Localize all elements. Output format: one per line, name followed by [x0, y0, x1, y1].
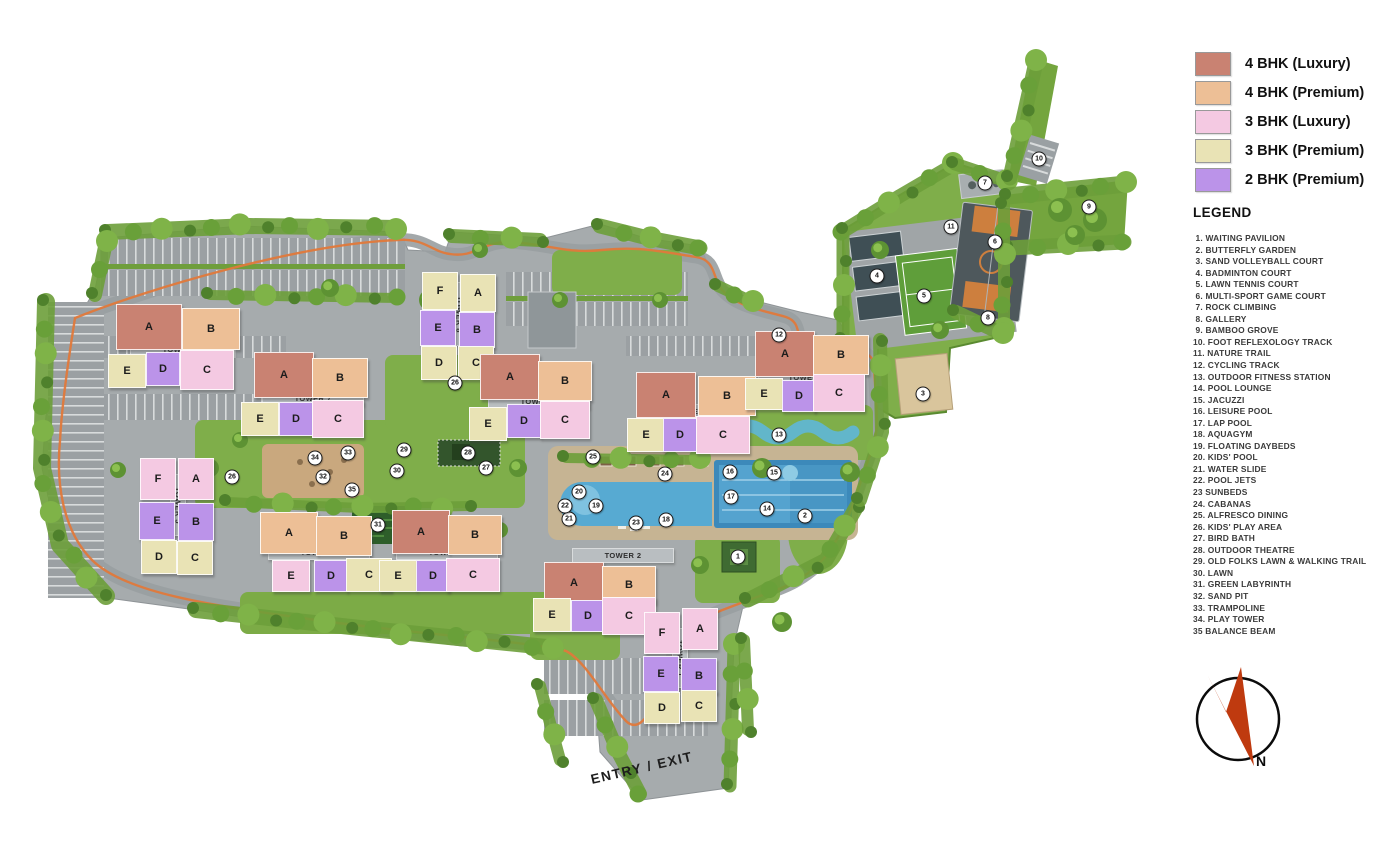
legend-item: 34. PLAY TOWER: [1193, 614, 1400, 626]
legend-list: 1. WAITING PAVILION 2. BUTTERFLY GARDEN …: [1193, 233, 1400, 637]
key-row-4P: 4 BHK (Premium): [1195, 81, 1364, 105]
marker-2[interactable]: 2: [798, 509, 813, 524]
legend-item: 30. LAWN: [1193, 568, 1400, 580]
legend-item: 8. GALLERY: [1193, 314, 1400, 326]
legend-item: 33. TRAMPOLINE: [1193, 603, 1400, 615]
tower-4-unit-A[interactable]: A: [260, 512, 318, 554]
tower-1-unit-E[interactable]: E: [643, 656, 679, 692]
compass: N: [1197, 667, 1279, 769]
tower-6-unit-A[interactable]: A: [116, 304, 182, 350]
legend-item: 29. OLD FOLKS LAWN & WALKING TRAIL: [1193, 556, 1400, 568]
legend-item: 1. WAITING PAVILION: [1193, 233, 1400, 245]
tower-6-unit-C[interactable]: C: [180, 350, 234, 390]
tower-1-unit-A[interactable]: A: [682, 608, 718, 650]
marker-23[interactable]: 23: [629, 516, 644, 531]
marker-4[interactable]: 4: [870, 269, 885, 284]
marker-28[interactable]: 28: [461, 446, 476, 461]
tower-8-unit-D[interactable]: D: [421, 346, 457, 380]
key-row-2P: 2 BHK (Premium): [1195, 168, 1364, 192]
marker-12[interactable]: 12: [772, 328, 787, 343]
legend-item: 5. LAWN TENNIS COURT: [1193, 279, 1400, 291]
marker-26[interactable]: 26: [448, 376, 463, 391]
tower-2-label: TOWER 2: [572, 548, 674, 563]
legend-item: 14. POOL LOUNGE: [1193, 383, 1400, 395]
legend-item: 20. KIDS' POOL: [1193, 452, 1400, 464]
tower-10-unit-A[interactable]: A: [636, 372, 696, 418]
tower-5-unit-B[interactable]: B: [178, 503, 214, 541]
legend-item: 3. SAND VOLLEYBALL COURT: [1193, 256, 1400, 268]
tower-8-unit-A[interactable]: A: [460, 274, 496, 312]
marker-29[interactable]: 29: [397, 443, 412, 458]
marker-19[interactable]: 19: [589, 499, 604, 514]
key-swatch-3L: [1195, 110, 1231, 134]
legend-item: 17. LAP POOL: [1193, 418, 1400, 430]
marker-18[interactable]: 18: [659, 513, 674, 528]
tower-3-unit-C[interactable]: C: [446, 558, 500, 592]
legend-item: 31. GREEN LABYRINTH: [1193, 579, 1400, 591]
legend-item: 7. ROCK CLIMBING: [1193, 302, 1400, 314]
legend-item: 19. FLOATING DAYBEDS: [1193, 441, 1400, 453]
tower-5-unit-E[interactable]: E: [139, 502, 175, 540]
tower-3-unit-A[interactable]: A: [392, 510, 450, 554]
legend-item: 28. OUTDOOR THEATRE: [1193, 545, 1400, 557]
key-label: 3 BHK (Premium): [1245, 143, 1364, 159]
tower-6-unit-D[interactable]: D: [146, 352, 180, 386]
compass-needle: [1208, 667, 1254, 766]
legend-item: 10. FOOT REFLEXOLOGY TRACK: [1193, 337, 1400, 349]
marker-5[interactable]: 5: [917, 289, 932, 304]
legend-item: 25. ALFRESCO DINING: [1193, 510, 1400, 522]
marker-34[interactable]: 34: [308, 451, 323, 466]
legend-item: 4. BADMINTON COURT: [1193, 268, 1400, 280]
marker-10[interactable]: 10: [1032, 152, 1047, 167]
tower-8-unit-B[interactable]: B: [459, 312, 495, 348]
key-label: 3 BHK (Luxury): [1245, 114, 1351, 130]
tower-3-unit-B[interactable]: B: [448, 515, 502, 555]
tower-4-unit-B[interactable]: B: [316, 516, 372, 556]
key-swatch-4L: [1195, 52, 1231, 76]
legend-item: 13. OUTDOOR FITNESS STATION: [1193, 372, 1400, 384]
tower-9-unit-E[interactable]: E: [469, 407, 507, 441]
marker-30[interactable]: 30: [390, 464, 405, 479]
key-label: 4 BHK (Luxury): [1245, 56, 1351, 72]
tower-6-unit-E[interactable]: E: [108, 354, 146, 388]
marker-33[interactable]: 33: [341, 446, 356, 461]
legend-item: 24. CABANAS: [1193, 499, 1400, 511]
tower-5-unit-C[interactable]: C: [177, 541, 213, 575]
key-row-3P: 3 BHK (Premium): [1195, 139, 1364, 163]
tower-9-unit-B[interactable]: B: [538, 361, 592, 401]
tower-8-unit-E[interactable]: E: [420, 310, 456, 346]
marker-35[interactable]: 35: [345, 483, 360, 498]
marker-20[interactable]: 20: [572, 485, 587, 500]
key-swatch-2P: [1195, 168, 1231, 192]
tower-4-unit-E[interactable]: E: [272, 560, 310, 592]
key-label: 4 BHK (Premium): [1245, 85, 1364, 101]
marker-3[interactable]: 3: [916, 387, 931, 402]
marker-25[interactable]: 25: [586, 450, 601, 465]
marker-13[interactable]: 13: [772, 428, 787, 443]
marker-11[interactable]: 11: [944, 220, 959, 235]
tower-7-unit-B[interactable]: B: [312, 358, 368, 398]
legend-item: 9. BAMBOO GROVE: [1193, 325, 1400, 337]
marker-17[interactable]: 17: [724, 490, 739, 505]
tower-1-unit-B[interactable]: B: [681, 658, 717, 694]
marker-8[interactable]: 8: [981, 311, 996, 326]
marker-9[interactable]: 9: [1082, 200, 1097, 215]
key-swatch-3P: [1195, 139, 1231, 163]
legend-item: 18. AQUAGYM: [1193, 429, 1400, 441]
legend-item: 11. NATURE TRAIL: [1193, 348, 1400, 360]
key-row-3L: 3 BHK (Luxury): [1195, 110, 1351, 134]
marker-14[interactable]: 14: [760, 502, 775, 517]
tower-7-unit-D[interactable]: D: [279, 402, 313, 436]
marker-27[interactable]: 27: [479, 461, 494, 476]
legend-item: 16. LEISURE POOL: [1193, 406, 1400, 418]
master-plan-page: ENTRY / EXIT N TOWER 6ABEDCTOWER 7ABEDCT…: [0, 0, 1400, 852]
key-row-4L: 4 BHK (Luxury): [1195, 52, 1351, 76]
tower-5-unit-D[interactable]: D: [141, 540, 177, 574]
marker-7[interactable]: 7: [978, 176, 993, 191]
marker-22[interactable]: 22: [558, 499, 573, 514]
legend-item: 22. POOL JETS: [1193, 475, 1400, 487]
tower-10-unit-D[interactable]: D: [663, 418, 697, 452]
tower-10-unit-E[interactable]: E: [627, 418, 665, 452]
marker-26[interactable]: 26: [225, 470, 240, 485]
tower-11-unit-E[interactable]: E: [745, 378, 783, 410]
key-label: 2 BHK (Premium): [1245, 172, 1364, 188]
compass-north-label: N: [1256, 753, 1266, 769]
legend-item: 6. MULTI-SPORT GAME COURT: [1193, 291, 1400, 303]
tower-7-unit-C[interactable]: C: [312, 400, 364, 438]
tower-11-unit-C[interactable]: C: [813, 374, 865, 412]
marker-24[interactable]: 24: [658, 467, 673, 482]
tower-5-unit-A[interactable]: A: [178, 458, 214, 500]
tower-9-unit-C[interactable]: C: [540, 401, 590, 439]
tower-1-unit-F[interactable]: F: [644, 612, 680, 654]
tower-8-unit-F[interactable]: F: [422, 272, 458, 310]
tower-3-unit-E[interactable]: E: [379, 560, 417, 592]
tower-11-unit-D[interactable]: D: [782, 380, 816, 412]
key-swatch-4P: [1195, 81, 1231, 105]
marker-31[interactable]: 31: [371, 518, 386, 533]
legend-item: 2. BUTTERFLY GARDEN: [1193, 245, 1400, 257]
legend-item: 27. BIRD BATH: [1193, 533, 1400, 545]
marker-15[interactable]: 15: [767, 466, 782, 481]
marker-6[interactable]: 6: [988, 235, 1003, 250]
tower-11-unit-B[interactable]: B: [813, 335, 869, 375]
legend-item: 23 SUNBEDS: [1193, 487, 1400, 499]
tower-2-unit-E[interactable]: E: [533, 598, 571, 632]
tower-1-unit-D[interactable]: D: [644, 692, 680, 724]
tower-10-unit-C[interactable]: C: [696, 416, 750, 454]
legend-item: 35 BALANCE BEAM: [1193, 626, 1400, 638]
legend-item: 15. JACUZZI: [1193, 395, 1400, 407]
legend-title: LEGEND: [1193, 205, 1252, 220]
tower-7-unit-A[interactable]: A: [254, 352, 314, 398]
legend-item: 12. CYCLING TRACK: [1193, 360, 1400, 372]
tower-5-unit-F[interactable]: F: [140, 458, 176, 500]
legend-item: 26. KIDS' PLAY AREA: [1193, 522, 1400, 534]
marker-21[interactable]: 21: [562, 512, 577, 527]
marker-1[interactable]: 1: [731, 550, 746, 565]
legend-item: 21. WATER SLIDE: [1193, 464, 1400, 476]
legend-item: 32. SAND PIT: [1193, 591, 1400, 603]
marker-16[interactable]: 16: [723, 465, 738, 480]
tower-9-unit-D[interactable]: D: [507, 404, 541, 438]
tower-3-unit-D[interactable]: D: [416, 560, 450, 592]
tower-4-unit-D[interactable]: D: [314, 560, 348, 592]
tower-1-unit-C[interactable]: C: [681, 690, 717, 722]
tower-7-unit-E[interactable]: E: [241, 402, 279, 436]
tower-2-unit-D[interactable]: D: [571, 600, 605, 632]
tower-6-unit-B[interactable]: B: [182, 308, 240, 350]
marker-32[interactable]: 32: [316, 470, 331, 485]
tower-9-unit-A[interactable]: A: [480, 354, 540, 400]
